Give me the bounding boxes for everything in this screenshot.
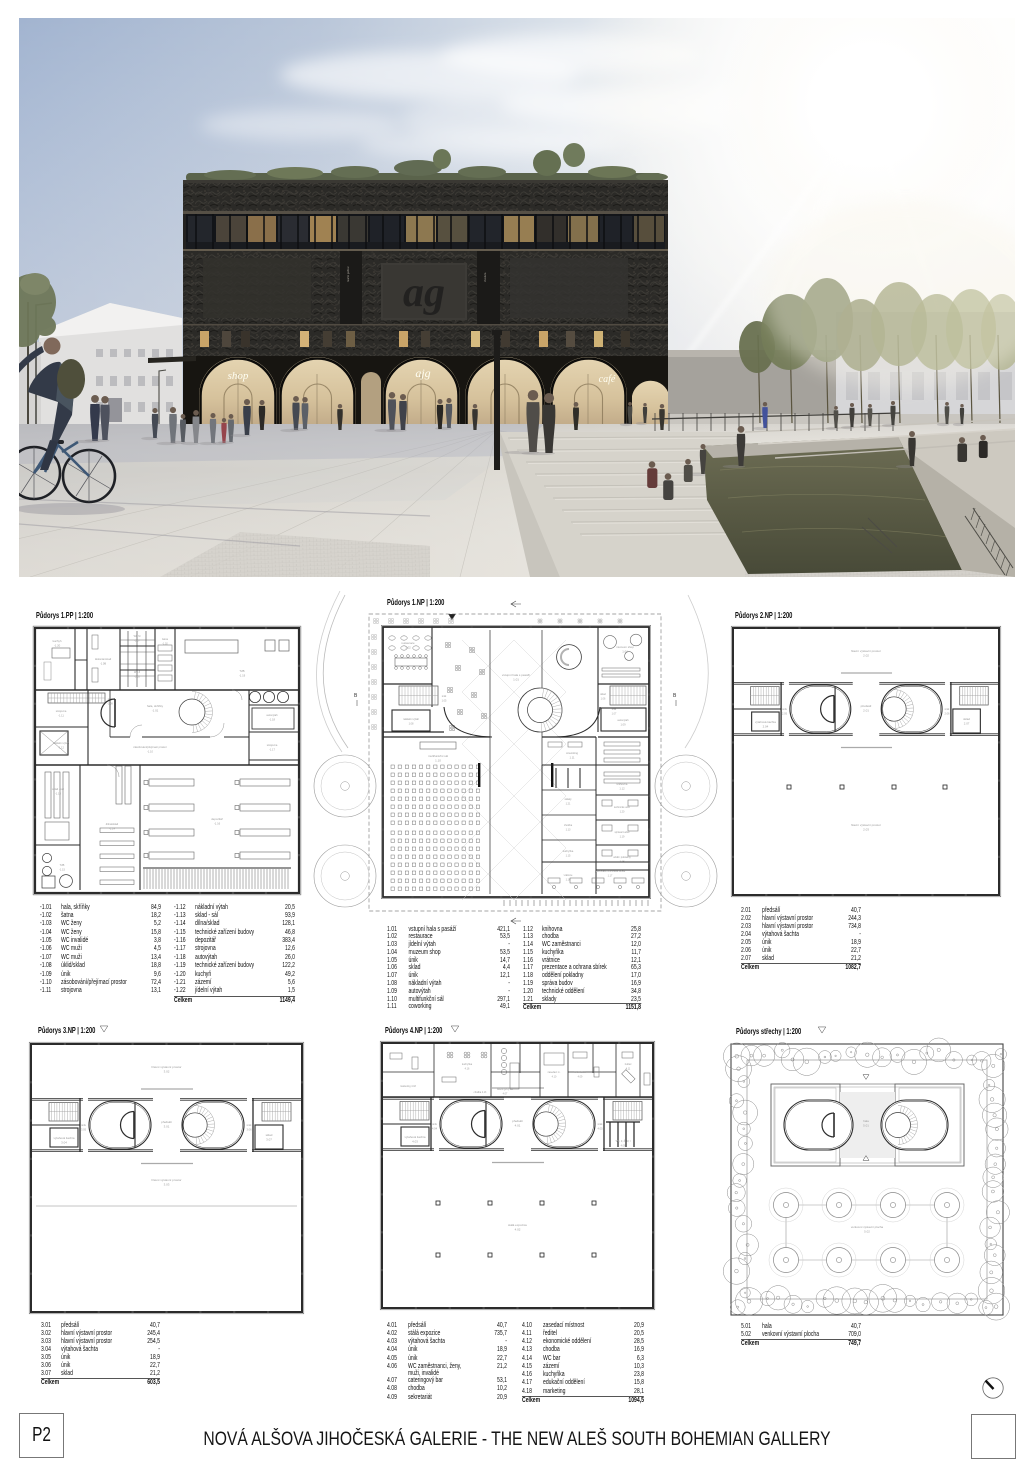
svg-text:únik: únik	[598, 1122, 603, 1126]
svg-text:1.20: 1.20	[620, 810, 625, 813]
svg-text:chodba: chodba	[564, 824, 573, 827]
svg-text:-1.18: -1.18	[269, 717, 275, 721]
svg-text:hlavní výstavní prostor: hlavní výstavní prostor	[151, 1178, 181, 1182]
svg-text:kuchyňka: kuchyňka	[462, 1063, 473, 1066]
svg-text:1.17: 1.17	[608, 874, 613, 877]
svg-text:únik: únik	[945, 707, 950, 711]
svg-text:-1.0B: -1.0B	[100, 661, 106, 665]
svg-text:předsálí: předsálí	[512, 1119, 523, 1123]
svg-text:4.16: 4.16	[465, 1067, 470, 1070]
svg-text:WC, Z, Ž, M, I: WC, Z, Ž, M, I	[616, 1140, 631, 1143]
svg-text:4.05: 4.05	[597, 1126, 603, 1130]
svg-text:kuchyňka: kuchyňka	[563, 850, 574, 853]
svg-text:sklady: sklady	[564, 798, 572, 801]
svg-text:1.06: 1.06	[601, 697, 606, 700]
svg-text:WC M: WC M	[134, 635, 141, 638]
svg-text:T2B: T2B	[239, 669, 244, 673]
svg-text:coworking: coworking	[566, 751, 579, 755]
svg-text:kuchyň: kuchyň	[53, 639, 62, 643]
svg-text:únik: únik	[432, 1122, 437, 1126]
svg-text:2.07: 2.07	[964, 721, 970, 725]
svg-text:4.02: 4.02	[515, 1227, 521, 1231]
svg-text:únik: únik	[81, 1123, 86, 1127]
svg-text:1.21: 1.21	[566, 802, 571, 805]
svg-text:1.15: 1.15	[566, 854, 571, 857]
svg-text:únik: únik	[442, 695, 447, 698]
svg-text:marketing 4.18: marketing 4.18	[400, 1085, 416, 1088]
svg-text:multifunkční sál: multifunkční sál	[428, 754, 448, 758]
svg-text:-1.11: -1.11	[58, 713, 64, 717]
svg-text:sekretariát: sekretariát	[574, 1071, 585, 1074]
svg-text:muzeum shop: muzeum shop	[616, 645, 634, 649]
svg-text:4.10: 4.10	[552, 1075, 557, 1078]
svg-text:restaurace: restaurace	[401, 641, 415, 645]
svg-text:hlavní výstavní prostor: hlavní výstavní prostor	[851, 649, 881, 653]
svg-text:4.11: 4.11	[626, 1067, 631, 1070]
svg-text:T2B: T2B	[60, 863, 65, 867]
svg-text:4.09: 4.09	[578, 1075, 583, 1078]
svg-text:technické odd.: technické odd.	[614, 806, 630, 809]
svg-text:-1.10: -1.10	[147, 749, 153, 753]
svg-text:1.12: 1.12	[619, 786, 625, 790]
svg-text:1.08: 1.08	[409, 722, 414, 725]
svg-text:2.03: 2.03	[863, 827, 869, 831]
svg-text:1.10: 1.10	[435, 758, 441, 762]
svg-text:2.01: 2.01	[863, 708, 869, 712]
svg-text:sklad - sál: sklad - sál	[52, 787, 64, 791]
svg-text:hala, skříňky: hala, skříňky	[147, 704, 164, 708]
svg-text:-1.17: -1.17	[269, 747, 275, 751]
svg-text:1.05: 1.05	[442, 699, 447, 702]
svg-text:předsálí: předsálí	[861, 704, 872, 708]
svg-text:-1.03: -1.03	[134, 675, 140, 678]
svg-text:odděl. pokladny: odděl. pokladny	[613, 856, 631, 859]
svg-text:-1.16: -1.16	[214, 821, 221, 825]
svg-text:1.13: 1.13	[566, 828, 571, 831]
svg-text:-1.12: -1.12	[58, 746, 64, 749]
svg-text:-1.13: -1.13	[55, 791, 61, 795]
svg-text:autovýtah: autovýtah	[266, 713, 278, 717]
svg-text:4.04: 4.04	[432, 1126, 438, 1130]
svg-text:3.07: 3.07	[266, 1137, 272, 1141]
svg-text:předsálí: předsálí	[161, 1120, 172, 1124]
svg-text:2.06: 2.06	[944, 711, 950, 715]
svg-text:výtahová šachta: výtahová šachta	[755, 720, 776, 724]
svg-text:zasedací m.: zasedací m.	[548, 1071, 561, 1074]
svg-text:-1.19: -1.19	[239, 673, 246, 677]
svg-text:1.09: 1.09	[620, 722, 626, 726]
svg-text:chodba 4.13: chodba 4.13	[474, 1092, 487, 1094]
svg-text:šatna: šatna	[162, 638, 169, 641]
svg-text:1.01: 1.01	[513, 677, 519, 681]
svg-text:5.02: 5.02	[864, 1229, 870, 1233]
svg-text:vstupní hala s pasáží: vstupní hala s pasáží	[502, 673, 530, 677]
svg-text:sklad: sklad	[600, 693, 606, 696]
svg-text:hala: hala	[863, 1119, 869, 1123]
svg-text:sklad: sklad	[963, 717, 970, 721]
svg-text:dekontaminad: dekontaminad	[95, 657, 112, 661]
svg-text:nákladní výtah: nákladní výtah	[53, 742, 70, 745]
svg-text:dílna/sklad: dílna/sklad	[106, 822, 119, 826]
svg-text:stálá expozice: stálá expozice	[508, 1223, 527, 1227]
svg-text:hlavní výstavní prostor: hlavní výstavní prostor	[851, 823, 881, 827]
svg-text:WC Ž: WC Ž	[134, 671, 141, 674]
svg-text:1.19: 1.19	[620, 835, 625, 838]
svg-text:autovýtah: autovýtah	[617, 718, 629, 722]
svg-text:2.04: 2.04	[763, 724, 769, 728]
svg-text:nákladní výtah: nákladní výtah	[403, 718, 420, 721]
svg-text:-1.20: -1.20	[54, 643, 61, 647]
svg-text:-1.15: -1.15	[59, 867, 65, 871]
svg-text:únik: únik	[782, 707, 787, 711]
svg-text:výtahová šachta: výtahová šachta	[54, 1136, 75, 1140]
svg-text:-1.07: -1.07	[134, 639, 140, 642]
svg-text:4.06: 4.06	[621, 1144, 626, 1147]
svg-text:3.04: 3.04	[61, 1140, 67, 1144]
svg-text:1.11: 1.11	[569, 755, 575, 759]
svg-text:4.07: 4.07	[503, 1092, 508, 1095]
svg-text:výtahová šachta: výtahová šachta	[405, 1135, 426, 1139]
svg-text:1.07: 1.07	[612, 712, 617, 715]
svg-text:3.01: 3.01	[164, 1124, 170, 1128]
svg-text:4.01: 4.01	[515, 1123, 521, 1127]
svg-text:3.02: 3.02	[164, 1069, 170, 1073]
svg-text:hlavní výstavní prostor: hlavní výstavní prostor	[151, 1065, 181, 1069]
svg-text:správa budov: správa budov	[614, 831, 630, 834]
svg-text:-1.02: -1.02	[162, 642, 168, 645]
svg-text:únik: únik	[247, 1123, 252, 1127]
svg-text:B: B	[673, 693, 677, 699]
svg-text:cateringový bar: cateringový bar	[497, 1088, 514, 1091]
svg-text:2.05: 2.05	[782, 711, 788, 715]
svg-text:-1.01: -1.01	[152, 708, 159, 712]
svg-text:1.04: 1.04	[622, 649, 628, 653]
svg-text:-1.14: -1.14	[109, 826, 115, 830]
svg-text:knihovna: knihovna	[617, 782, 628, 786]
svg-text:ředitel: ředitel	[625, 1063, 632, 1066]
svg-text:5.01: 5.01	[863, 1123, 869, 1127]
svg-text:B: B	[354, 693, 358, 699]
svg-text:strojovna: strojovna	[267, 743, 278, 747]
svg-text:venkovní výstavní plocha: venkovní výstavní plocha	[851, 1225, 884, 1229]
svg-text:3.05: 3.05	[81, 1127, 87, 1131]
svg-text:4.03: 4.03	[412, 1139, 418, 1143]
svg-text:zásobování/přejímací prostor: zásobování/přejímací prostor	[133, 745, 167, 749]
svg-text:strojovna: strojovna	[56, 709, 67, 713]
svg-text:depozitář: depozitář	[211, 817, 223, 821]
svg-text:3.03: 3.03	[164, 1182, 170, 1186]
svg-text:2.02: 2.02	[863, 653, 869, 657]
svg-text:sklad: sklad	[266, 1133, 273, 1137]
svg-text:vrátnice: vrátnice	[564, 874, 573, 877]
svg-text:prezentace a ochrana sbírek: prezentace a ochrana sbírek	[595, 870, 626, 873]
svg-text:3.06: 3.06	[246, 1127, 252, 1131]
